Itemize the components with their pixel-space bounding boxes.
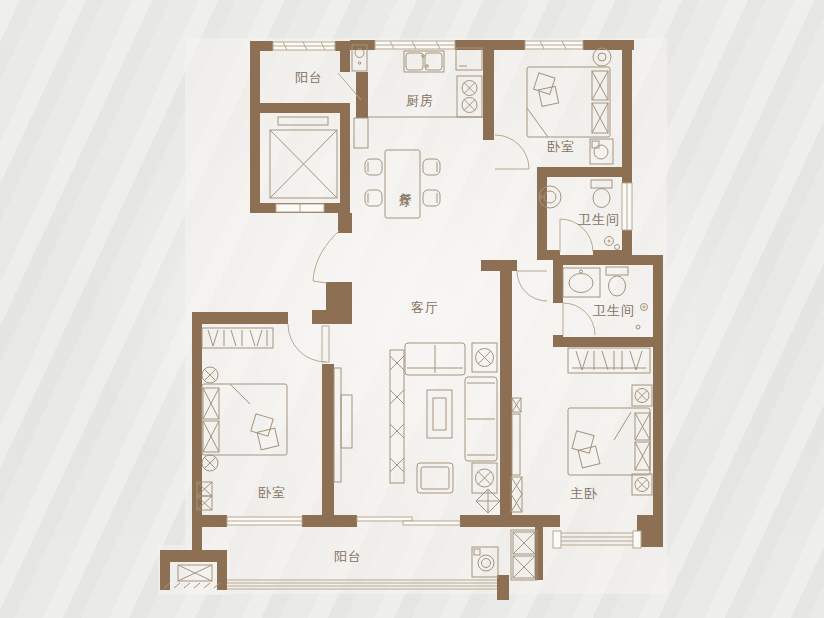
room-label-balcony-bottom: 阳台 [334, 548, 362, 566]
window-balcony-top [273, 42, 335, 50]
room-label-living-room: 客厅 [411, 299, 439, 317]
room-label-bathroom-upper: 卫生间 [578, 211, 620, 229]
room-label-bedroom-top-right: 卧室 [547, 138, 575, 156]
window-kitchen [375, 41, 455, 49]
room-label-master-bedroom: 主卧 [570, 485, 598, 503]
room-label-kitchen: 厨房 [406, 92, 434, 110]
room-label-bedroom-bottom-left: 卧室 [258, 484, 286, 502]
window-bedroom-top-right [525, 41, 583, 49]
room-label-balcony-top: 阳台 [295, 69, 323, 87]
window-bathroom-upper [622, 183, 632, 230]
floor-plan: 阳台 厨房 卧室 卫生间 卫生间 餐厅 客厅 卧室 主卧 阳台 [0, 0, 824, 618]
room-label-dining-room: 餐厅 [396, 182, 414, 186]
elevator-door [276, 204, 324, 212]
window-bedroom-balcony [227, 517, 302, 525]
room-label-bathroom-lower: 卫生间 [593, 302, 635, 320]
